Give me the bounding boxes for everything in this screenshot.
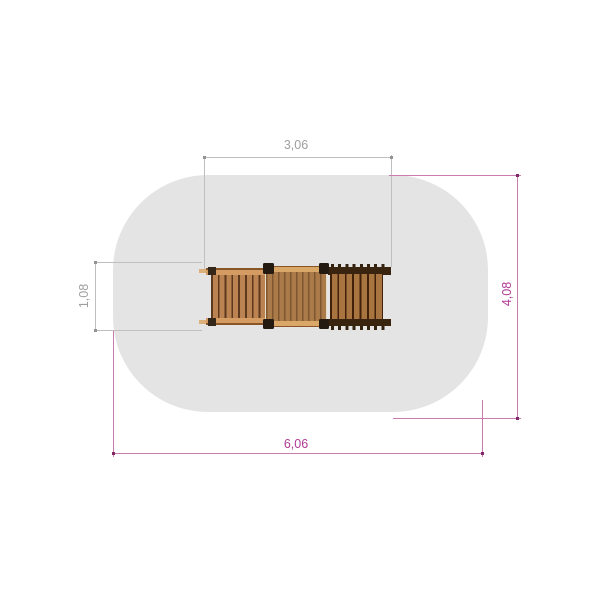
dim-area-depth-label: 4,08 xyxy=(501,274,513,314)
bridge-rail-notches-bottom xyxy=(331,326,388,330)
bridge-rail-bottom xyxy=(328,319,391,327)
dim-structure-depth-extension-top xyxy=(95,262,202,263)
dim-tick-icon xyxy=(481,452,484,455)
ladder-post-cap-top xyxy=(208,267,216,275)
platform-corner-post xyxy=(263,319,274,330)
platform-corner-post xyxy=(319,263,330,274)
dim-area-depth-extension-bottom xyxy=(393,418,521,419)
dim-structure-width-label: 3,06 xyxy=(276,139,316,151)
dim-area-width-extension-right xyxy=(482,400,483,457)
dim-tick-icon xyxy=(390,156,393,159)
dim-area-width-extension-left xyxy=(113,331,114,457)
dim-structure-width-extension-right xyxy=(391,155,392,267)
dim-tick-icon xyxy=(112,452,115,455)
platform-corner-post xyxy=(319,319,330,330)
dim-tick-icon xyxy=(94,261,97,264)
playground-plan-drawing: 3,06 1,08 4,08 6,06 xyxy=(0,0,600,600)
platform-edge-beam-bottom xyxy=(273,321,319,327)
platform-corner-post xyxy=(263,263,274,274)
ladder-post-cap-bottom xyxy=(208,318,216,326)
dim-area-width-label: 6,06 xyxy=(276,438,316,450)
bridge-planks xyxy=(330,274,383,319)
platform-deck-planks xyxy=(265,272,327,321)
ladder-rungs xyxy=(211,275,265,318)
dim-tick-icon xyxy=(203,156,206,159)
dim-area-depth-extension-top xyxy=(389,175,521,176)
dim-tick-icon xyxy=(94,329,97,332)
dim-structure-width-extension-left xyxy=(204,157,205,269)
dim-tick-icon xyxy=(516,417,519,420)
platform-edge-beam-top xyxy=(273,266,319,272)
dim-area-width-line xyxy=(113,453,482,454)
dim-structure-depth-label: 1,08 xyxy=(78,276,90,316)
dim-area-depth-line xyxy=(517,175,518,418)
dim-tick-icon xyxy=(516,174,519,177)
dim-structure-width-line xyxy=(204,157,392,158)
dim-structure-depth-line xyxy=(95,262,96,330)
dim-structure-depth-extension-bottom xyxy=(95,330,202,331)
